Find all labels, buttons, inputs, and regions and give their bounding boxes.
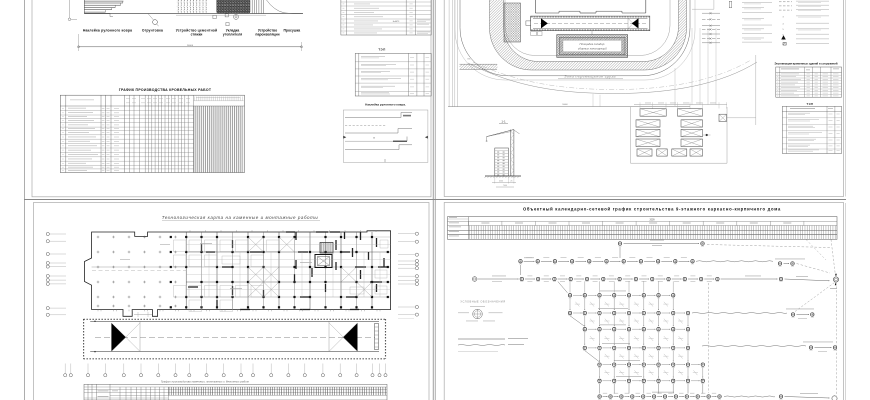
- svg-text:7000: 7000: [503, 185, 507, 187]
- svg-text:Экспликация временных зданий и: Экспликация временных зданий и сооружени…: [775, 62, 838, 66]
- svg-text:25: 25: [510, 181, 512, 183]
- svg-text:4500: 4500: [499, 181, 503, 183]
- svg-text:90000: 90000: [562, 104, 568, 106]
- svg-text:стяжки: стяжки: [191, 32, 203, 36]
- svg-text:ГРАФИК ПРОИЗВОДСТВА КРОВЕЛЬНЫХ: ГРАФИК ПРОИЗВОДСТВА КРОВЕЛЬНЫХ РАБОТ: [119, 88, 212, 92]
- svg-text:УСЛОВНЫЕ ОБОЗНАЧЕНИЯ: УСЛОВНЫЕ ОБОЗНАЧЕНИЯ: [460, 300, 505, 304]
- svg-text:График производства каменных,: График производства каменных, монтажных …: [161, 380, 250, 384]
- svg-text:Наклейка рулонного ковра: Наклейка рулонного ковра: [83, 29, 132, 33]
- svg-text:пароизоляции: пароизоляции: [255, 32, 279, 36]
- svg-text:24000: 24000: [187, 45, 194, 47]
- svg-text:№6673: №6673: [393, 20, 400, 23]
- svg-text:ТЭП: ТЭП: [807, 102, 814, 106]
- svg-text:утеплителя: утеплителя: [223, 32, 242, 36]
- svg-text:Просушка: Просушка: [283, 29, 300, 33]
- svg-text:Технологическая карта на камен: Технологическая карта на каменные и монт…: [162, 215, 319, 220]
- svg-text:2009: 2009: [649, 220, 655, 222]
- svg-text:Объектный календарно-сетевой г: Объектный календарно-сетевой график стро…: [523, 206, 781, 211]
- svg-text:Огрунтовка: Огрунтовка: [142, 29, 163, 33]
- svg-text:ТЭП: ТЭП: [378, 48, 385, 52]
- svg-text:6%: 6%: [468, 59, 471, 61]
- svg-text:Наклейка рулонного ковра.: Наклейка рулонного ковра.: [365, 102, 406, 106]
- svg-text:Зона перемещения груза: Зона перемещения груза: [564, 75, 616, 79]
- svg-text:сборных конструкций: сборных конструкций: [578, 46, 607, 50]
- svg-text:1-1: 1-1: [501, 119, 506, 123]
